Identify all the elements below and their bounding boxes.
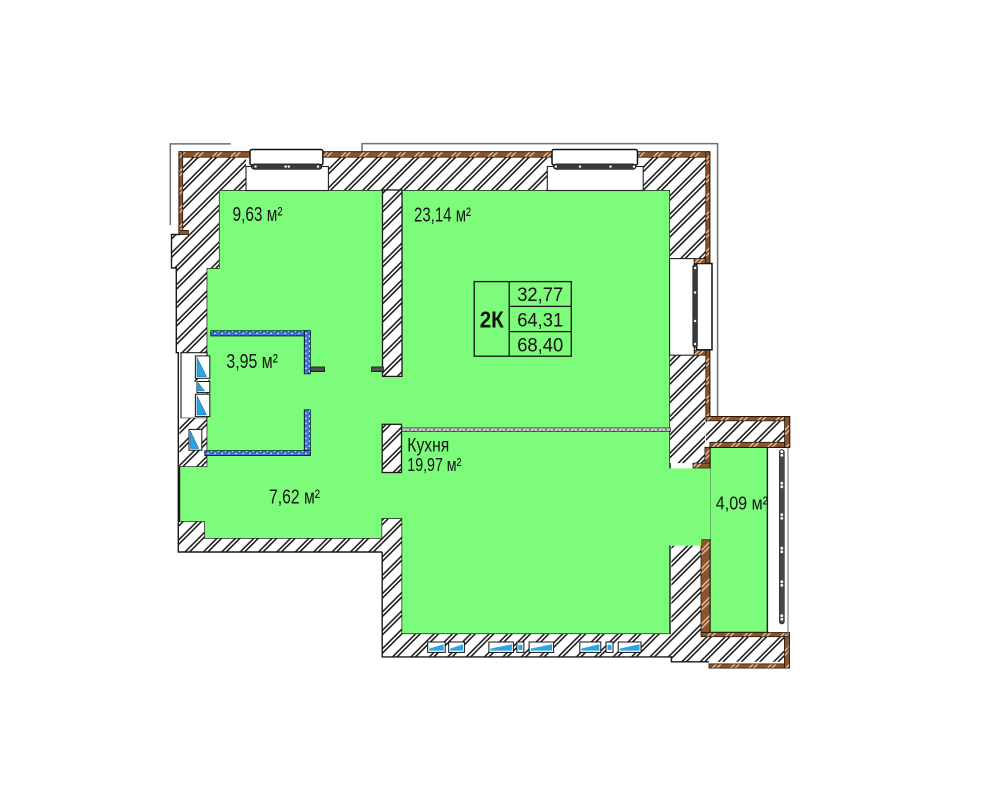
svg-text:2К: 2К	[480, 307, 505, 333]
svg-text:4,09 м²: 4,09 м²	[716, 493, 768, 514]
svg-text:9,63 м²: 9,63 м²	[233, 203, 283, 226]
svg-text:68,40: 68,40	[517, 334, 563, 356]
svg-text:3,95 м²: 3,95 м²	[226, 350, 278, 373]
svg-text:32,77: 32,77	[517, 284, 563, 306]
svg-text:19,97 м²: 19,97 м²	[407, 454, 461, 475]
svg-text:23,14 м²: 23,14 м²	[414, 203, 471, 226]
svg-text:64,31: 64,31	[517, 309, 563, 331]
svg-text:7,62 м²: 7,62 м²	[269, 486, 320, 509]
